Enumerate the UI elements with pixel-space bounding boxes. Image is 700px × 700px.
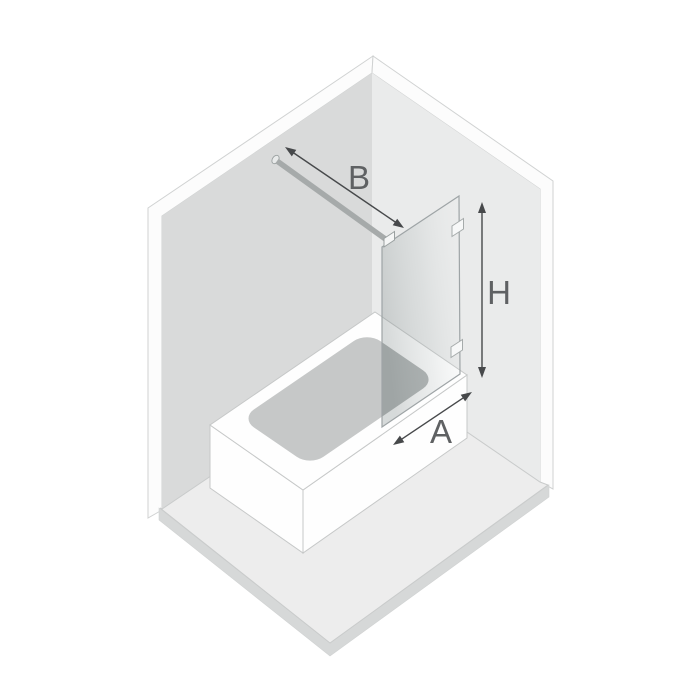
bath-screen-diagram: B H A — [0, 0, 700, 700]
dimension-label-a: A — [430, 413, 452, 450]
diagram-canvas: B H A — [0, 0, 700, 700]
dimension-label-h: H — [487, 274, 511, 311]
dimension-label-b: B — [348, 159, 370, 196]
